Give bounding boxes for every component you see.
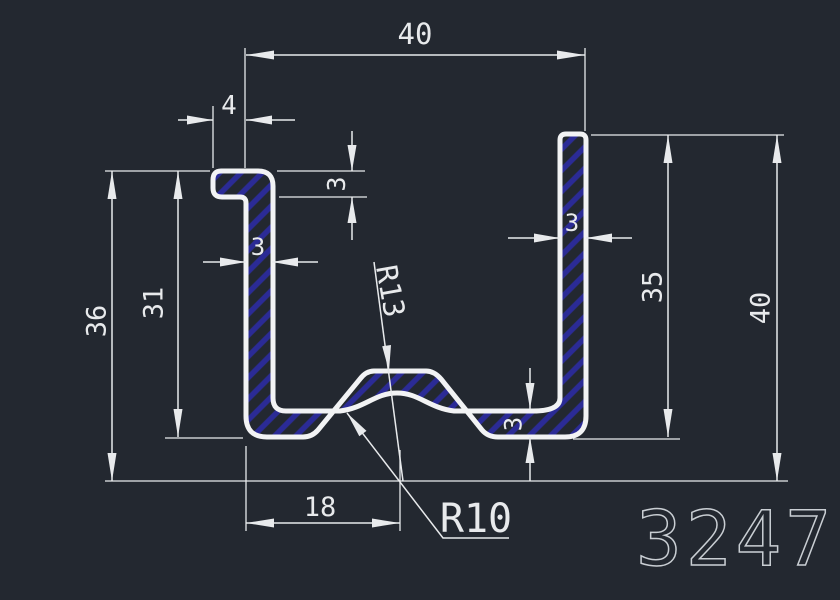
dim-inner-height-31: 31	[105, 171, 243, 438]
dim-text-right-wall-thickness: 3	[565, 209, 579, 237]
dim-text-bump-offset: 18	[304, 492, 337, 523]
dim-bump-offset: 18	[246, 446, 400, 531]
dim-inner-height-35: 35	[573, 135, 784, 439]
dim-text-inner-height-31: 31	[138, 287, 169, 320]
dim-text-overall-height-40: 40	[745, 292, 776, 325]
dim-lip-thickness: 3	[277, 131, 367, 240]
dim-overall-height-40: 40	[745, 135, 781, 481]
dim-overall-height-36: 36	[81, 171, 788, 481]
dim-text-inner-height-35: 35	[637, 271, 668, 304]
cad-viewport: 40 4 3 3 31	[0, 0, 840, 600]
dim-text-lip-thickness: 3	[322, 176, 351, 191]
dim-text-left-wall-thickness: 3	[251, 233, 265, 261]
part-number: 3247	[636, 494, 835, 583]
dim-text-lip-overhang: 4	[221, 91, 237, 121]
dim-text-overall-width: 40	[398, 17, 433, 51]
dim-overall-width-top: 40	[245, 17, 585, 168]
dim-text-overall-height-36: 36	[81, 305, 112, 338]
cad-drawing: 40 4 3 3 31	[0, 0, 840, 600]
dim-text-bottom-thickness: 3	[499, 417, 527, 431]
dim-lip-overhang: 4	[178, 91, 295, 168]
radius-text-r13: R13	[369, 262, 412, 319]
radius-text-r10: R10	[440, 496, 512, 542]
